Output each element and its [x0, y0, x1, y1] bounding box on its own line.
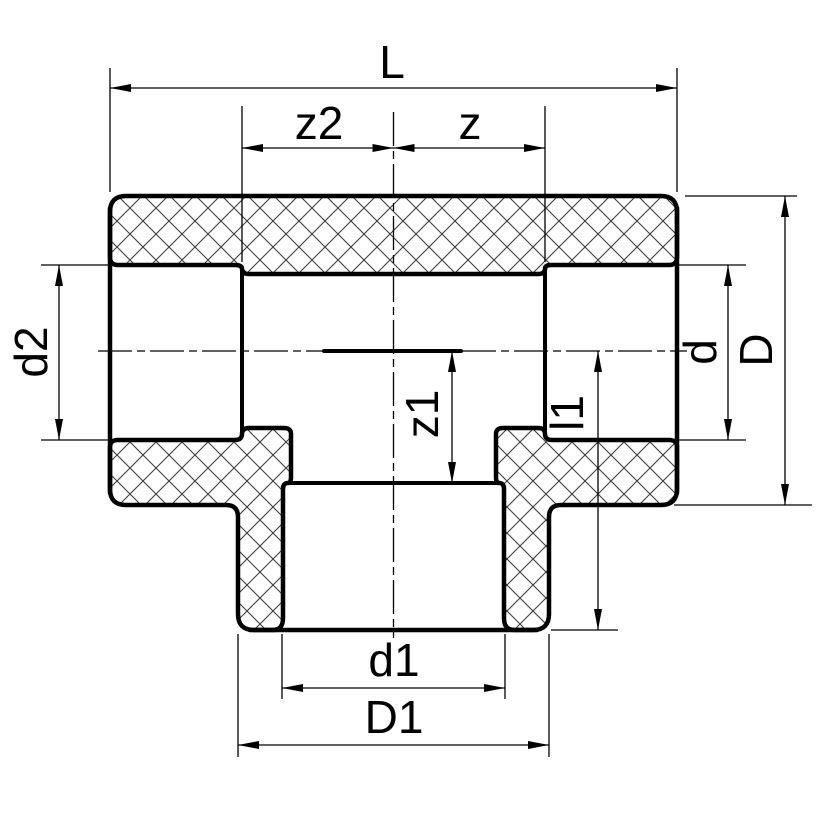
tee-fitting-section-drawing: L z2 z d2 z1 l1 d D d1 D1: [0, 0, 830, 830]
arrowhead: [448, 351, 456, 372]
arrowhead: [524, 144, 545, 152]
arrowhead: [484, 684, 505, 692]
arrowhead: [238, 741, 259, 749]
arrowhead: [656, 84, 677, 92]
arrowhead: [373, 144, 394, 152]
arrowhead: [724, 419, 732, 440]
drawing-canvas: L z2 z d2 z1 l1 d D d1 D1: [0, 0, 830, 830]
dimension-label-z: z: [459, 97, 482, 149]
dimension-label-d2: d2: [5, 326, 57, 377]
arrowhead: [394, 144, 415, 152]
arrowhead: [781, 484, 789, 505]
arrowhead: [594, 351, 602, 372]
arrowhead: [781, 196, 789, 217]
centerlines: [98, 112, 687, 638]
arrowhead: [110, 84, 131, 92]
arrowhead: [282, 684, 303, 692]
dimension-label-D: D: [730, 333, 782, 366]
dimension-label-d1: d1: [368, 634, 419, 686]
arrowhead: [528, 741, 549, 749]
bottom-left-wall-section: [110, 428, 291, 630]
dimension-label-d: d: [674, 339, 726, 365]
arrowhead: [55, 419, 63, 440]
dimension-label-z1: z1: [396, 390, 448, 439]
arrowhead: [724, 265, 732, 286]
arrowhead: [55, 265, 63, 286]
dimension-label-z2: z2: [295, 97, 344, 149]
dimension-label-l1: l1: [541, 395, 593, 431]
bottom-right-wall-section: [496, 428, 677, 630]
dimension-label-D1: D1: [365, 691, 424, 743]
arrowhead: [448, 462, 456, 483]
dimension-label-L: L: [379, 36, 405, 88]
dimension-z1: [448, 351, 456, 483]
arrowhead: [594, 609, 602, 630]
arrowhead: [242, 144, 263, 152]
